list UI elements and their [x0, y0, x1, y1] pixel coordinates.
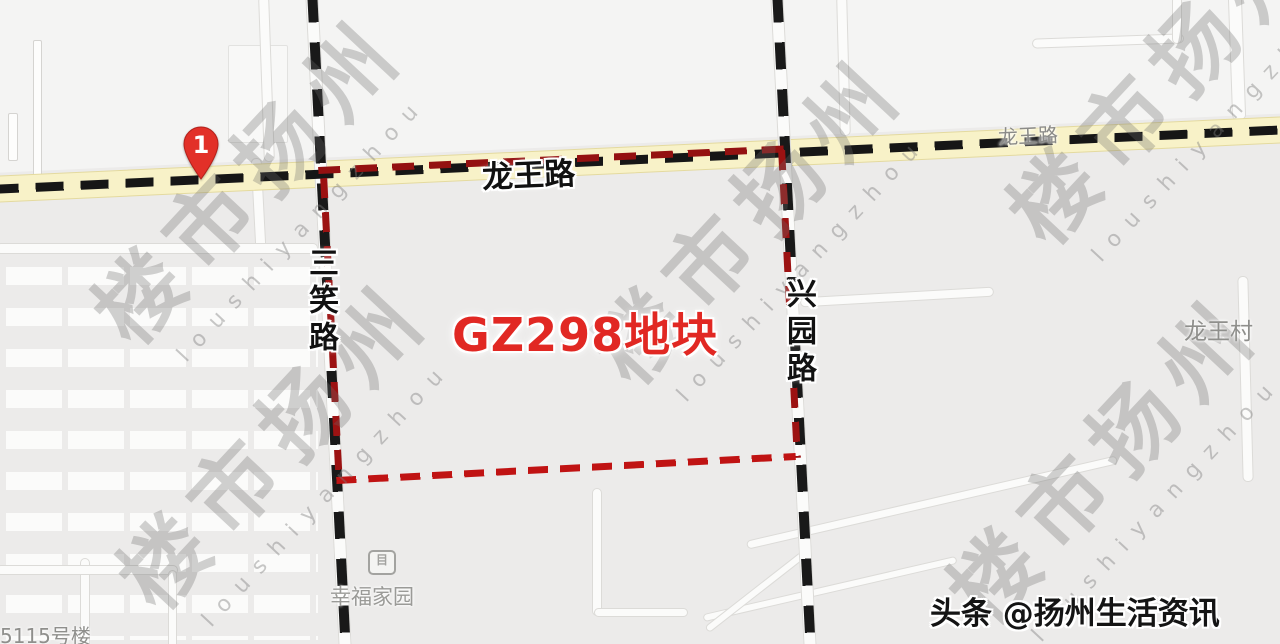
- xingyuan-road-label: 兴园路: [783, 278, 813, 389]
- minor-road: [1172, 0, 1182, 44]
- parcel-boundary-south: [336, 453, 796, 484]
- location-pin-marker[interactable]: 1: [183, 126, 219, 180]
- sanxiao-road-label: 三笑路: [305, 247, 335, 358]
- minor-road: [1237, 276, 1253, 482]
- minor-road: [0, 243, 318, 254]
- minor-road: [592, 488, 602, 616]
- minor-road: [800, 287, 994, 308]
- longwang-road-label-far: 龙王路: [997, 119, 1058, 151]
- xingfu-homes-label: 幸福家园: [330, 581, 414, 611]
- building-5115-label: 5115号楼: [0, 620, 91, 644]
- minor-road: [0, 565, 178, 575]
- parcel-label: GZ298地块: [452, 299, 718, 365]
- map-canvas: 楼市扬州 loushiyangzhou 楼市扬州 loushiyangzhou …: [0, 0, 1280, 644]
- source-caption: 头条 @扬州生活资讯: [930, 588, 1220, 633]
- pin-number: 1: [193, 131, 210, 159]
- minor-road: [704, 547, 811, 633]
- residence-poi-icon: 目: [368, 550, 396, 575]
- poi-glyph: 目: [376, 553, 388, 567]
- minor-road: [168, 570, 177, 644]
- minor-road: [594, 608, 688, 617]
- building-outline: [228, 45, 288, 143]
- building-outline: [33, 40, 42, 190]
- minor-road: [702, 556, 957, 622]
- residential-blocks-grid: [0, 258, 318, 640]
- pin-icon: 1: [183, 126, 219, 180]
- longwang-village-label: 龙王村: [1184, 312, 1253, 346]
- longwang-road-label: 龙王路: [481, 148, 576, 197]
- building-outline: [8, 113, 18, 161]
